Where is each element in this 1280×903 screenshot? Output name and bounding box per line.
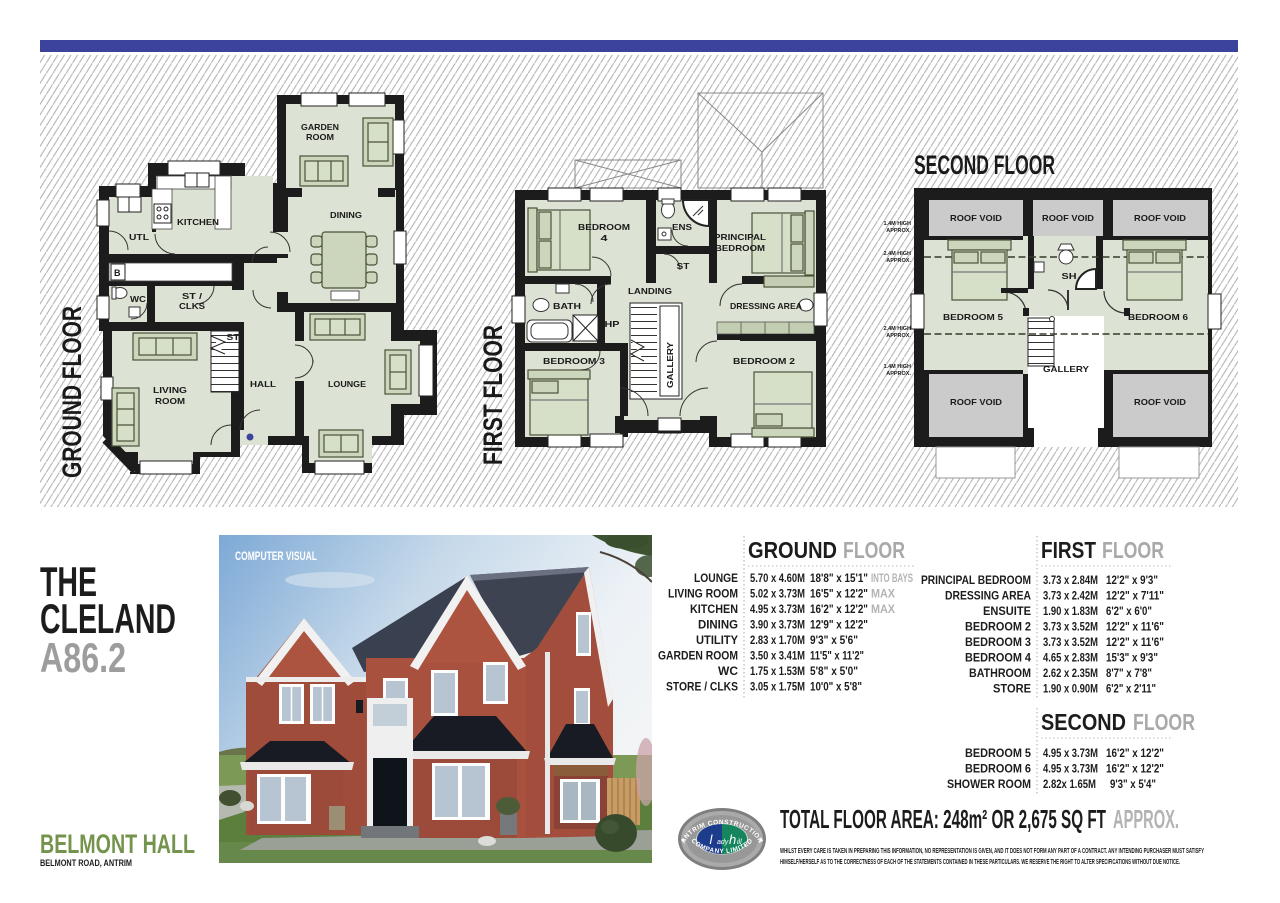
svg-text:12'2" x 7'11": 12'2" x 7'11" [1106, 591, 1164, 603]
svg-text:PRINCIPAL: PRINCIPAL [714, 232, 766, 242]
svg-text:11'5" x 11'2": 11'5" x 11'2" [810, 651, 864, 663]
svg-text:BEDROOM 4: BEDROOM 4 [965, 653, 1032, 665]
svg-text:LOUNGE: LOUNGE [328, 379, 366, 389]
svg-text:16'2" x 12'2": 16'2" x 12'2" [1106, 748, 1164, 760]
svg-text:APPROX.: APPROX. [886, 258, 911, 264]
svg-text:INTO BAYS: INTO BAYS [871, 573, 913, 585]
svg-text:WC: WC [718, 666, 738, 678]
svg-text:MAX: MAX [871, 604, 895, 616]
svg-text:GARDEN ROOM: GARDEN ROOM [658, 651, 738, 663]
svg-text:16'2" x 12'2": 16'2" x 12'2" [1106, 764, 1164, 776]
svg-text:KITCHEN: KITCHEN [690, 604, 738, 616]
svg-text:1.90 x 0.90M: 1.90 x 0.90M [1043, 684, 1098, 696]
svg-text:HIMSELF/HERSELF AS TO THE CORR: HIMSELF/HERSELF AS TO THE CORRECTNESS OF… [780, 857, 1180, 866]
svg-text:ROOF VOID: ROOF VOID [1042, 213, 1094, 223]
svg-text:1.90 x 1.83M: 1.90 x 1.83M [1043, 606, 1098, 618]
svg-text:ROOF VOID: ROOF VOID [950, 213, 1002, 223]
svg-text:ady: ady [717, 839, 729, 846]
svg-text:h: h [729, 832, 736, 847]
svg-text:TOTAL FLOOR AREA: 248m² OR 2,6: TOTAL FLOOR AREA: 248m² OR 2,675 SQ FT [780, 804, 1106, 834]
svg-text:3.73 x 3.52M: 3.73 x 3.52M [1043, 622, 1098, 634]
svg-text:BEDROOM 5: BEDROOM 5 [943, 312, 1003, 322]
svg-text:FLOOR: FLOOR [1133, 709, 1195, 735]
svg-text:UTILITY: UTILITY [696, 635, 738, 647]
svg-text:COMPUTER VISUAL: COMPUTER VISUAL [235, 549, 317, 563]
svg-text:BEDROOM: BEDROOM [578, 222, 630, 232]
svg-text:DINING: DINING [698, 620, 738, 632]
svg-text:SECOND FLOOR: SECOND FLOOR [914, 150, 1055, 180]
svg-text:GALLERY: GALLERY [1043, 364, 1089, 374]
svg-text:DINING: DINING [330, 210, 362, 220]
svg-text:SH: SH [1062, 271, 1077, 281]
svg-text:DRESSING AREA: DRESSING AREA [730, 301, 802, 311]
svg-text:9'3" x 5'4": 9'3" x 5'4" [1110, 779, 1156, 791]
svg-text:2.82x 1.65M: 2.82x 1.65M [1043, 779, 1096, 791]
svg-text:3.73 x 3.52M: 3.73 x 3.52M [1043, 637, 1098, 649]
svg-text:1.4M HIGH: 1.4M HIGH [883, 364, 911, 370]
svg-text:ST: ST [677, 261, 691, 271]
svg-text:ST /: ST / [182, 291, 203, 301]
svg-text:4: 4 [601, 233, 608, 243]
svg-text:4.95 x 3.73M: 4.95 x 3.73M [750, 604, 805, 616]
svg-text:BEDROOM: BEDROOM [715, 243, 765, 253]
svg-text:KITCHEN: KITCHEN [177, 217, 219, 227]
svg-text:DRESSING AREA: DRESSING AREA [945, 591, 1031, 603]
svg-text:GARDEN: GARDEN [301, 122, 339, 132]
svg-text:3.05 x 1.75M: 3.05 x 1.75M [750, 682, 805, 694]
svg-text:2.4M HIGH: 2.4M HIGH [883, 326, 911, 332]
svg-text:LIVING: LIVING [153, 385, 187, 395]
svg-text:BEDROOM 6: BEDROOM 6 [1128, 312, 1188, 322]
svg-text:WHILST EVERY CARE IS TAKEN IN: WHILST EVERY CARE IS TAKEN IN PREPARING … [780, 846, 1204, 855]
svg-text:ENS: ENS [672, 222, 692, 232]
svg-text:FLOOR: FLOOR [843, 537, 905, 563]
svg-text:APPROX.: APPROX. [886, 228, 911, 234]
svg-text:FIRST: FIRST [1041, 537, 1096, 563]
svg-text:LIVING ROOM: LIVING ROOM [668, 589, 738, 601]
svg-text:APPROX.: APPROX. [886, 333, 911, 339]
svg-text:12'2" x 9'3": 12'2" x 9'3" [1106, 575, 1158, 587]
svg-text:SECOND: SECOND [1041, 709, 1126, 735]
svg-text:HALL: HALL [250, 379, 276, 389]
svg-text:LANDING: LANDING [628, 286, 672, 296]
svg-text:A86.2: A86.2 [40, 634, 126, 681]
svg-text:BATHROOM: BATHROOM [969, 668, 1031, 680]
svg-text:12'9" x 12'2": 12'9" x 12'2" [810, 620, 868, 632]
svg-text:LOUNGE: LOUNGE [694, 573, 738, 585]
svg-text:3.50 x 3.41M: 3.50 x 3.41M [750, 651, 805, 663]
svg-text:16'5" x 12'2": 16'5" x 12'2" [810, 589, 868, 601]
svg-text:9'3" x 5'6": 9'3" x 5'6" [810, 635, 858, 647]
svg-text:10'0" x 5'8": 10'0" x 5'8" [810, 682, 862, 694]
svg-text:BEDROOM 3: BEDROOM 3 [543, 356, 605, 366]
svg-text:STORE / CLKS: STORE / CLKS [666, 682, 738, 694]
svg-text:ill: ill [737, 839, 742, 846]
svg-text:UTL: UTL [129, 232, 149, 242]
svg-text:5'8" x 5'0": 5'8" x 5'0" [810, 666, 858, 678]
svg-text:BELMONT HALL: BELMONT HALL [40, 829, 195, 859]
svg-text:STORE: STORE [993, 684, 1031, 696]
svg-text:1.75 x 1.53M: 1.75 x 1.53M [750, 666, 805, 678]
svg-text:ROOF VOID: ROOF VOID [1134, 397, 1186, 407]
svg-text:12'2" x 11'6": 12'2" x 11'6" [1106, 637, 1164, 649]
svg-text:15'3" x 9'3": 15'3" x 9'3" [1106, 653, 1158, 665]
svg-text:16'2" x 12'2": 16'2" x 12'2" [810, 604, 868, 616]
svg-text:12'2" x 11'6": 12'2" x 11'6" [1106, 622, 1164, 634]
svg-text:PRINCIPAL BEDROOM: PRINCIPAL BEDROOM [921, 575, 1031, 587]
svg-text:BEDROOM 3: BEDROOM 3 [965, 637, 1031, 649]
svg-text:5.70 x 4.60M: 5.70 x 4.60M [750, 573, 805, 585]
svg-text:18'8" x 15'1": 18'8" x 15'1" [810, 573, 868, 585]
svg-text:GROUND: GROUND [748, 537, 837, 563]
svg-text:HP: HP [605, 319, 620, 329]
svg-text:6'2" x 2'11": 6'2" x 2'11" [1106, 684, 1156, 696]
svg-text:1.4M HIGH: 1.4M HIGH [883, 221, 911, 227]
svg-text:GROUND FLOOR: GROUND FLOOR [57, 306, 87, 478]
svg-text:BELMONT ROAD, ANTRIM: BELMONT ROAD, ANTRIM [40, 858, 132, 869]
svg-text:3.73 x 2.84M: 3.73 x 2.84M [1043, 575, 1098, 587]
svg-text:ROOM: ROOM [155, 396, 185, 406]
svg-text:3.90 x 3.73M: 3.90 x 3.73M [750, 620, 805, 632]
svg-text:MAX: MAX [871, 589, 895, 601]
svg-text:B: B [114, 268, 121, 278]
svg-text:6'2" x 6'0": 6'2" x 6'0" [1106, 606, 1152, 618]
svg-text:CLKS: CLKS [179, 301, 205, 311]
svg-text:SHOWER ROOM: SHOWER ROOM [947, 779, 1031, 791]
svg-text:FIRST FLOOR: FIRST FLOOR [478, 325, 508, 465]
svg-text:APPROX.: APPROX. [1113, 804, 1179, 834]
svg-text:BEDROOM 2: BEDROOM 2 [965, 622, 1031, 634]
svg-text:ENSUITE: ENSUITE [983, 606, 1031, 618]
svg-text:BEDROOM 5: BEDROOM 5 [965, 748, 1032, 760]
svg-text:BEDROOM 2: BEDROOM 2 [733, 356, 795, 366]
svg-text:2.4M HIGH: 2.4M HIGH [883, 251, 911, 257]
svg-text:8'7" x 7'8": 8'7" x 7'8" [1106, 668, 1152, 680]
svg-text:2.83 x 1.70M: 2.83 x 1.70M [750, 635, 805, 647]
svg-text:FLOOR: FLOOR [1102, 537, 1164, 563]
svg-text:WC: WC [130, 294, 146, 304]
svg-text:3.73 x 2.42M: 3.73 x 2.42M [1043, 591, 1098, 603]
svg-text:ROOF VOID: ROOF VOID [950, 397, 1002, 407]
svg-text:4.65 x 2.83M: 4.65 x 2.83M [1043, 653, 1098, 665]
svg-text:2.62 x 2.35M: 2.62 x 2.35M [1043, 668, 1098, 680]
svg-text:GALLERY: GALLERY [665, 342, 675, 388]
svg-text:BATH: BATH [553, 301, 581, 311]
svg-text:APPROX.: APPROX. [886, 371, 911, 377]
svg-text:4.95 x 3.73M: 4.95 x 3.73M [1043, 764, 1098, 776]
svg-text:BEDROOM 6: BEDROOM 6 [965, 764, 1031, 776]
svg-text:5.02 x 3.73M: 5.02 x 3.73M [750, 589, 805, 601]
svg-text:4.95 x 3.73M: 4.95 x 3.73M [1043, 748, 1098, 760]
svg-text:ROOM: ROOM [306, 132, 334, 142]
svg-text:ST: ST [227, 332, 241, 342]
svg-text:ROOF VOID: ROOF VOID [1134, 213, 1186, 223]
